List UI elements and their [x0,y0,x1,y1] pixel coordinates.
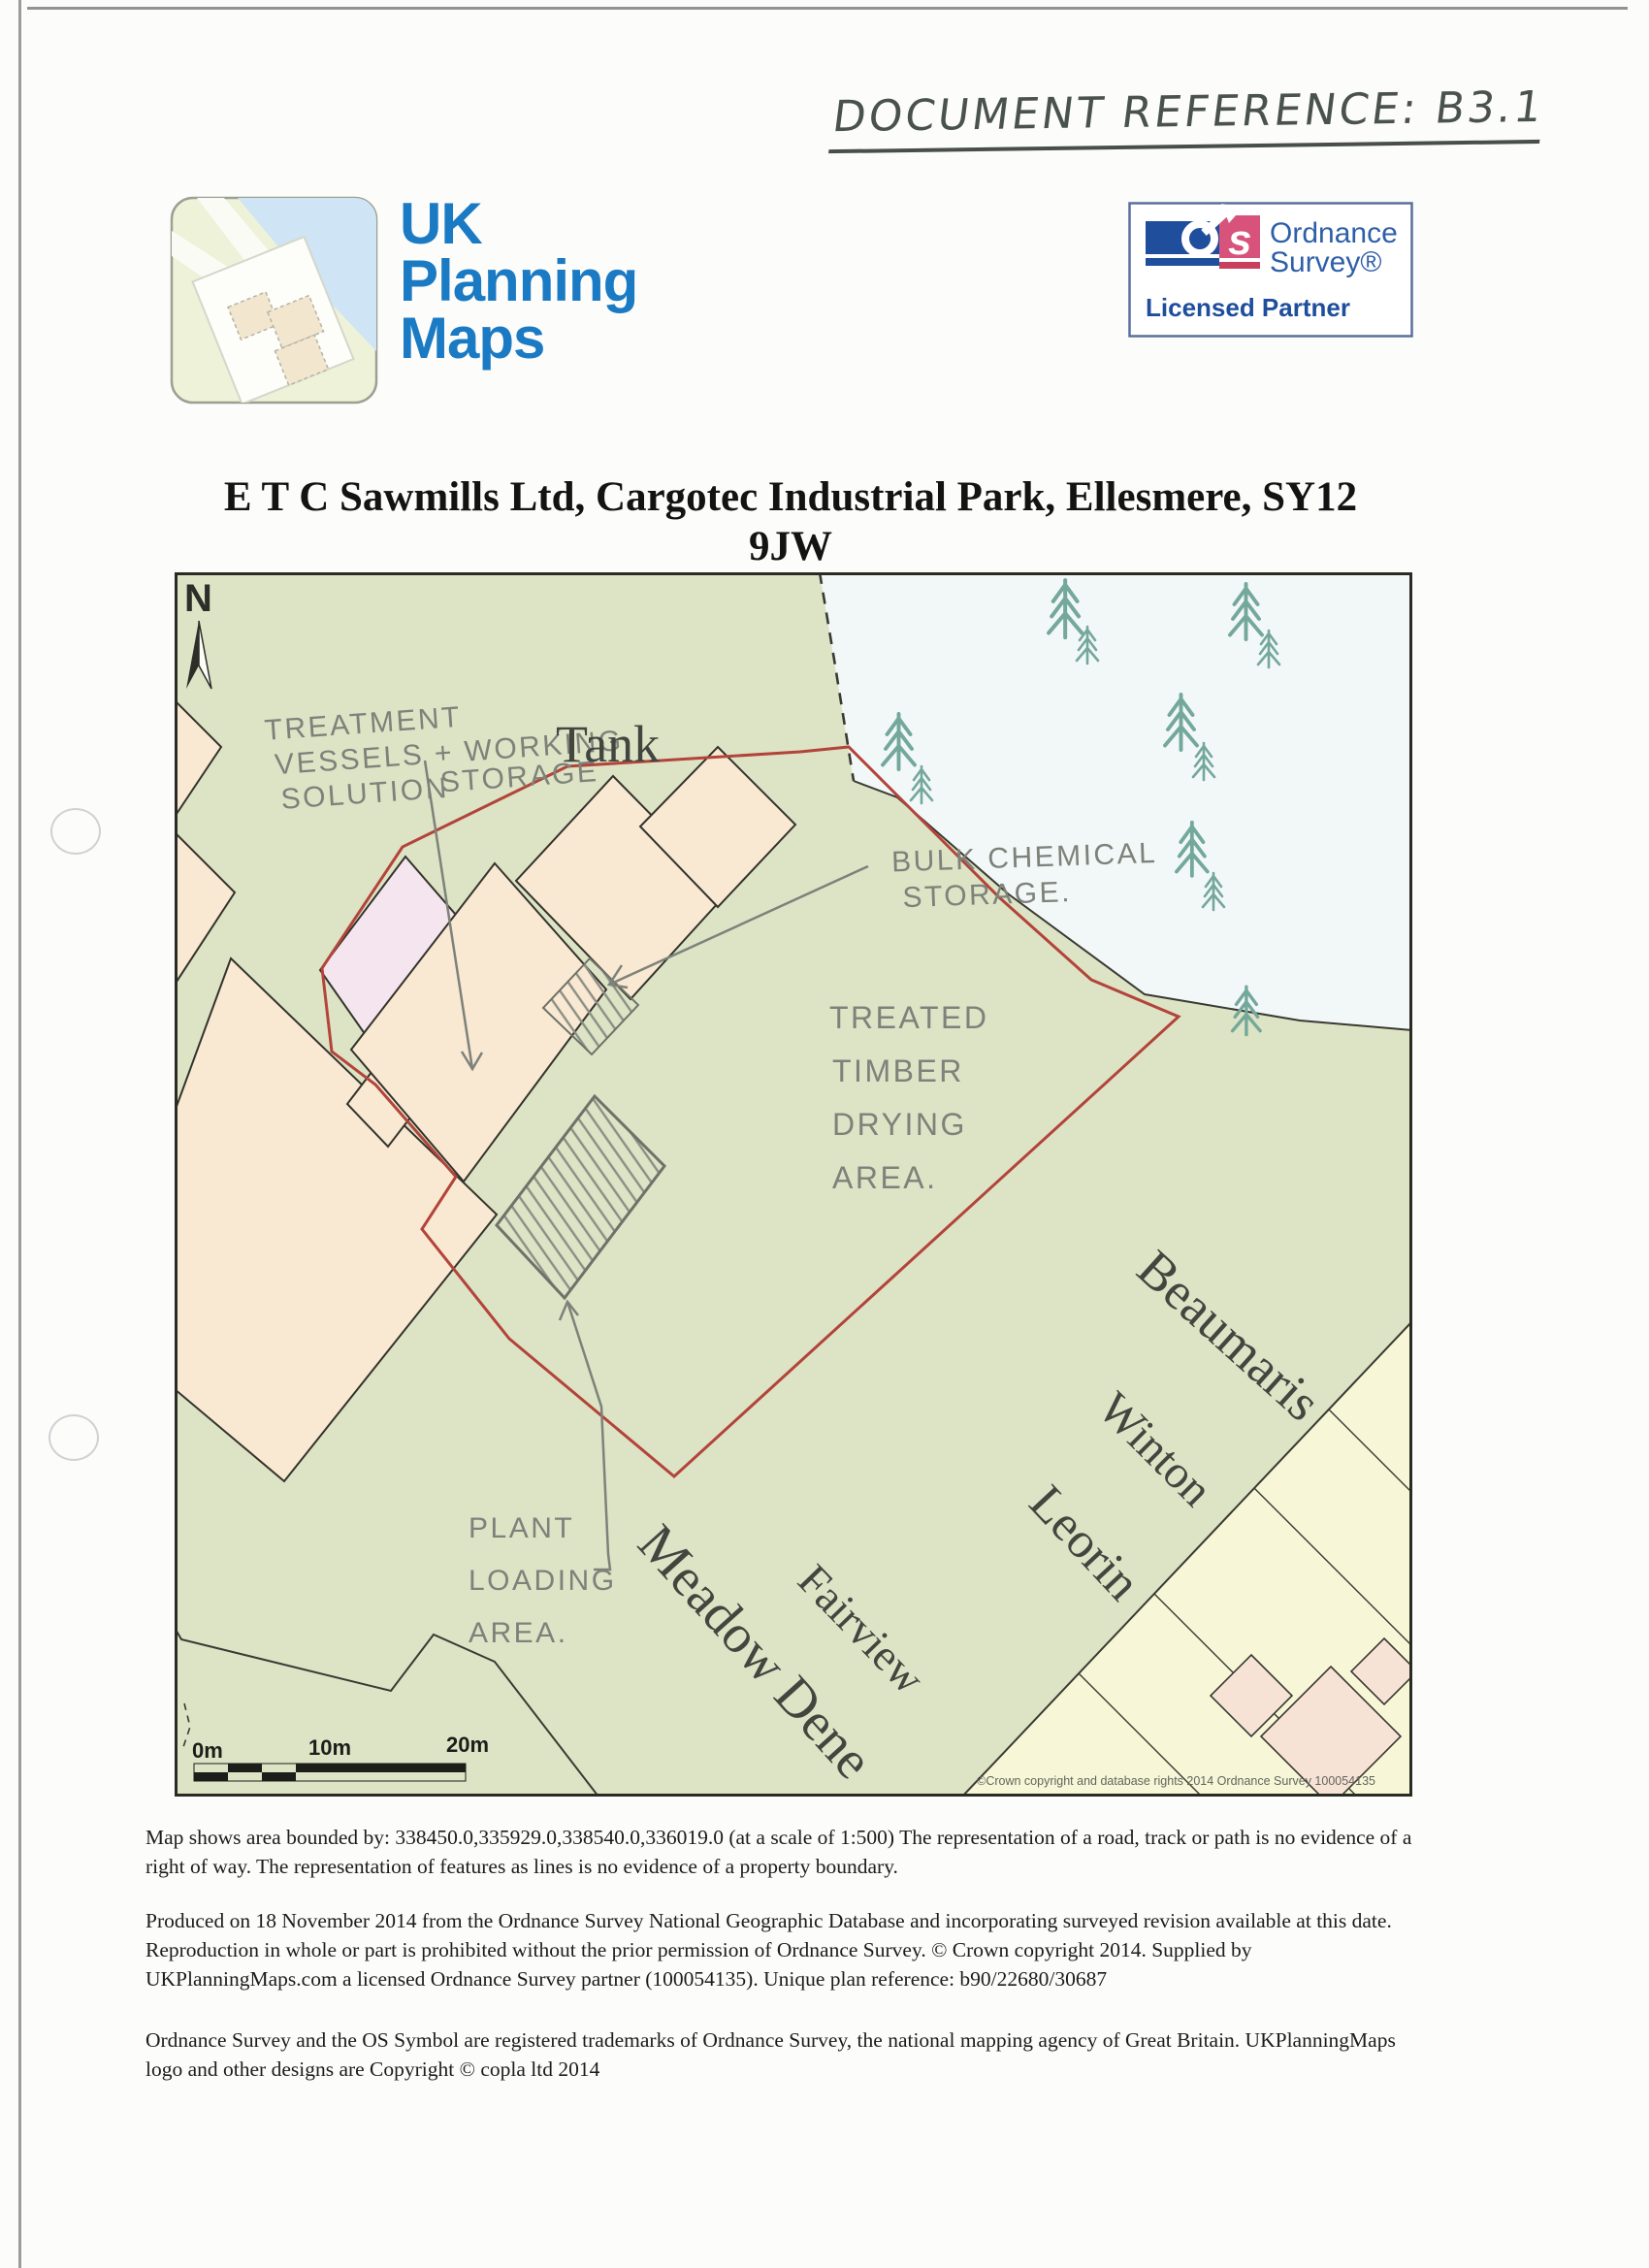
os-name-line1: Ordnance [1270,217,1398,249]
scale-tick-10m: 10m [308,1735,351,1760]
logo-word-uk: UK [400,196,637,253]
site-plan-map: TREATMENT VESSELS + WORKING SOLUTION STO… [175,572,1412,1797]
document-reference-handwriting: DOCUMENT REFERENCE: B3.1 [828,82,1547,153]
page-title-line1: E T C Sawmills Ltd, Cargotec Industrial … [145,473,1436,523]
footer-bounds-note: Map shows area bounded by: 338450.0,3359… [145,1824,1436,1881]
annotation-plant-line1: PLANT [469,1512,574,1544]
os-name-line2: Survey® [1270,246,1381,278]
os-licensed-partner: Licensed Partner [1146,293,1350,322]
annotation-treated-line3: DRYING [832,1107,967,1142]
annotation-treated-line2: TIMBER [832,1053,964,1088]
scale-tick-0m: 0m [192,1738,223,1763]
scan-edge-left [18,0,21,2268]
annotation-treated-line4: AREA. [832,1160,938,1195]
footer-production-note: Produced on 18 November 2014 from the Or… [145,1907,1436,1993]
hole-punch-top [50,808,101,855]
logo-word-maps: Maps [400,310,637,368]
label-tank: Tank [556,715,660,773]
annotation-treated-line1: TREATED [829,1000,988,1035]
page-title: E T C Sawmills Ltd, Cargotec Industrial … [145,473,1436,571]
annotation-bulk-line2: STORAGE. [902,876,1073,914]
map-copyright: ©Crown copyright and database rights 201… [977,1774,1375,1788]
os-logo-s: s [1228,216,1251,264]
page-title-line2: 9JW [145,523,1436,572]
footer-notes: Map shows area bounded by: 338450.0,3359… [145,1824,1436,2085]
scale-tick-20m: 20m [446,1733,489,1757]
ordnance-survey-badge: s Ordnance Survey® Licensed Partner [1128,202,1413,342]
ukplanningmaps-logo-icon [170,196,378,405]
annotation-plant-line2: LOADING [469,1565,617,1597]
footer-trademark-note: Ordnance Survey and the OS Symbol are re… [145,2026,1436,2084]
north-label: N [184,577,212,620]
ukplanningmaps-logo-wordmark: UK Planning Maps [400,196,637,367]
scan-edge-top [27,7,1628,10]
logo-word-planning: Planning [400,253,637,310]
ukplanningmaps-logo: UK Planning Maps [170,196,637,405]
hole-punch-bottom [48,1414,99,1461]
annotation-plant-line3: AREA. [469,1617,568,1649]
